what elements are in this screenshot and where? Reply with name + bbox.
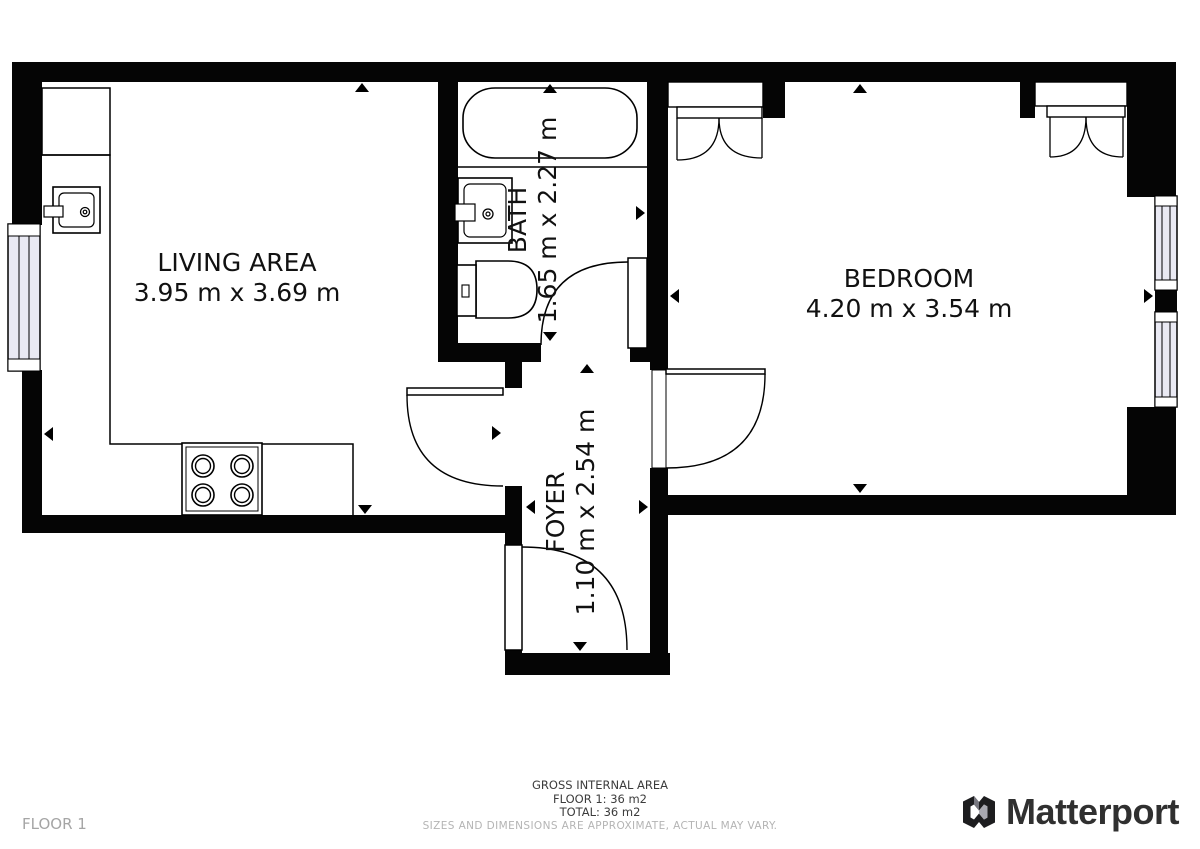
- door-living-foyer: [407, 388, 503, 486]
- matterport-wordmark: Matterport: [1006, 793, 1179, 831]
- room-label-bath: BATH 1.65 m x 2.27 m: [503, 117, 563, 324]
- room-label-bedroom: BEDROOM 4.20 m x 3.54 m: [806, 264, 1013, 324]
- room-dims: 4.20 m x 3.54 m: [806, 294, 1013, 324]
- kitchen-sink-icon: [44, 187, 100, 233]
- closet-bedroom-left: [668, 82, 763, 160]
- room-label-living: LIVING AREA 3.95 m x 3.69 m: [134, 248, 341, 308]
- room-label-foyer: FOYER 1.10 m x 2.54 m: [541, 409, 601, 616]
- room-dims: 1.65 m x 2.27 m: [533, 117, 563, 324]
- door-bedroom: [652, 369, 765, 468]
- window-bedroom-right-2: [1155, 312, 1177, 407]
- kitchen-cabinet-block: [42, 88, 110, 155]
- window-bedroom-right-1: [1155, 196, 1177, 290]
- room-name: LIVING AREA: [134, 248, 341, 278]
- room-dims: 3.95 m x 3.69 m: [134, 278, 341, 308]
- window-living-left: [8, 224, 40, 371]
- matterport-mark-icon: [962, 794, 996, 830]
- room-name: BATH: [503, 117, 533, 324]
- matterport-logo: Matterport: [962, 793, 1179, 831]
- room-name: BEDROOM: [806, 264, 1013, 294]
- closet-bedroom-right: [1035, 82, 1127, 157]
- stove-icon: [182, 443, 262, 515]
- room-dims: 1.10 m x 2.54 m: [571, 409, 601, 616]
- floor-number-label: FLOOR 1: [22, 815, 87, 833]
- floorplan-page: LIVING AREA 3.95 m x 3.69 m BATH 1.65 m …: [0, 0, 1200, 849]
- room-name: FOYER: [541, 409, 571, 616]
